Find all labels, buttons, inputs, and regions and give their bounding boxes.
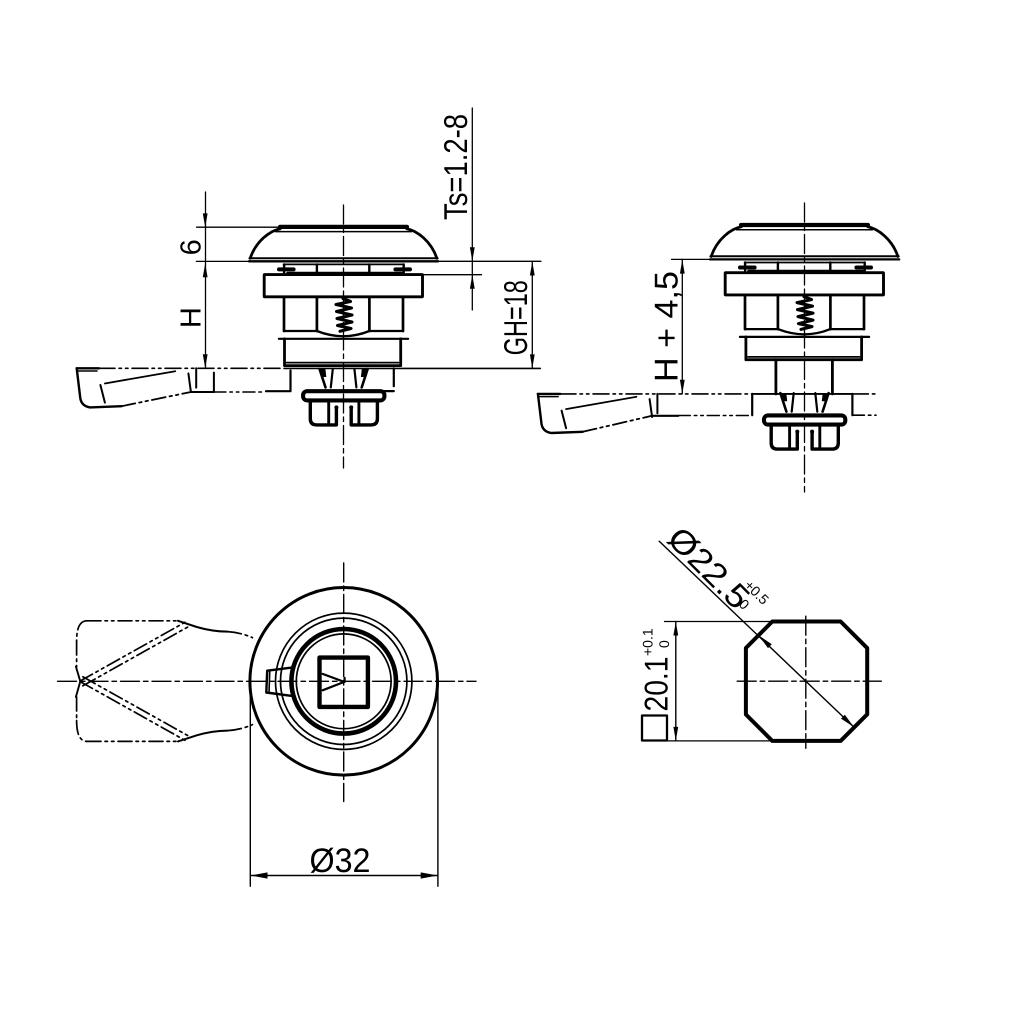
svg-text:Ø32: Ø32 — [310, 842, 371, 880]
svg-text:Ts=1.2-8: Ts=1.2-8 — [437, 114, 474, 220]
svg-text:20.1: 20.1 — [638, 657, 675, 712]
svg-text:+0.1: +0.1 — [640, 628, 656, 656]
svg-text:0: 0 — [656, 640, 672, 648]
svg-text:H: H — [176, 307, 208, 328]
svg-text:6: 6 — [176, 239, 208, 255]
svg-text:H + 4,5: H + 4,5 — [648, 271, 685, 382]
svg-text:GH=18: GH=18 — [497, 280, 534, 355]
